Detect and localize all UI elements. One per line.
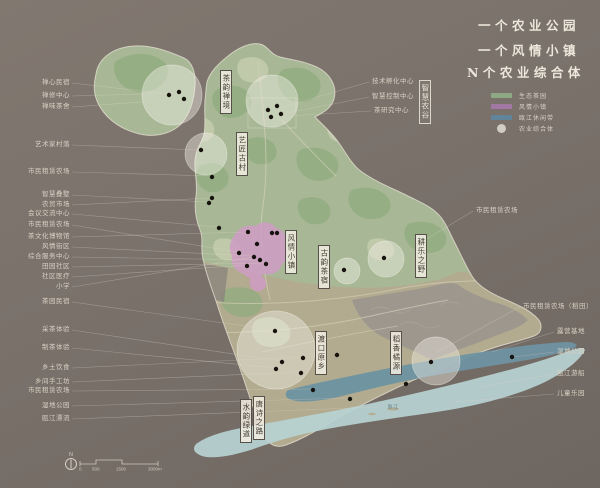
headline-agri-complex: N个农业综合体 (467, 62, 585, 81)
legend-row: 风情小镇 (491, 101, 554, 112)
poi-dot (342, 268, 346, 272)
map-district-label: 渡口原乡 (315, 331, 327, 375)
poi-dot (348, 397, 352, 401)
callout-label: 风情街区 (42, 243, 70, 251)
poi-dot (255, 242, 259, 246)
poi-dot (252, 255, 256, 259)
callout-label: 市民租赁农场（稻田） (523, 303, 593, 311)
poi-dot (266, 108, 270, 112)
callout-label: 禅味茶舍 (42, 103, 70, 111)
poi-dot (279, 112, 283, 116)
poi-dot (269, 115, 273, 119)
map-district-label: 稻香橘源 (390, 331, 402, 375)
legend-label: 风情小镇 (519, 102, 547, 111)
agri-complex-circle (334, 258, 360, 284)
headline-agri-park: 一个农业公园 (478, 15, 580, 34)
poi-dot (404, 382, 408, 386)
callout-label: 茶园民宿 (42, 298, 70, 306)
legend: 生态茶园风情小镇瓯江休闲带农业综合体 (491, 90, 554, 134)
callout-label: 市民租赁农场 (476, 207, 518, 215)
map-district-label: 唐诗之路 (253, 396, 265, 440)
agri-complex-circle (246, 75, 298, 127)
poi-dot (210, 196, 214, 200)
north-arrow (66, 459, 77, 470)
callout-label: 会议交流中心 (28, 210, 70, 218)
scale-tick-label: 1500 (116, 467, 127, 472)
callout-label: 田园社区 (42, 263, 70, 271)
poi-dot (264, 262, 268, 266)
river-label: 瓯江 (388, 404, 399, 410)
scale-labels: 050015003000m (79, 467, 162, 472)
poi-dot (246, 230, 250, 234)
callout-label: 市民租赁农场 (28, 221, 70, 229)
poi-dot (311, 388, 315, 392)
poi-dot (245, 264, 249, 268)
callout-label: 市民租赁农场 (28, 387, 70, 395)
map-district-label: 水韵绿道 (240, 399, 252, 443)
legend-row: 瓯江休闲带 (491, 112, 554, 123)
poi-dot (199, 148, 203, 152)
map-district-label: 风情小镇 (285, 230, 297, 274)
map-district-label: 茶韵禅境 (220, 70, 232, 114)
agri-complex-circle (142, 65, 202, 125)
headline-charm-town: 一个风情小镇 (478, 40, 580, 59)
callout-label: 禅心民宿 (42, 79, 70, 87)
poi-dot (275, 104, 279, 108)
poi-dot (274, 367, 278, 371)
callout-label: 采茶体验 (42, 326, 70, 334)
legend-swatch-bar (491, 115, 512, 120)
callout-label: 智慧叠墅 (42, 191, 70, 199)
callout-label: 茶文化博物馆 (28, 233, 70, 241)
callout-label: 湿地公园 (42, 402, 70, 410)
poi-dot (207, 201, 211, 205)
legend-swatch-bar (491, 93, 512, 98)
poi-dot (510, 355, 514, 359)
callout-label: 湿地公园 (557, 348, 585, 356)
callout-label: 瓯江漂流 (42, 415, 70, 423)
scale-tick-label: 0 (79, 467, 82, 472)
callout-label: 茶研究中心 (374, 107, 409, 115)
poi-dot (258, 258, 262, 262)
legend-label: 生态茶园 (519, 91, 547, 100)
poi-dot (217, 226, 221, 230)
callout-label: 农贸市场 (42, 201, 70, 209)
poi-dot (273, 329, 277, 333)
map-district-label: 艺匠古村 (236, 132, 248, 176)
callout-label: 制茶体验 (42, 344, 70, 352)
scale-bar (80, 460, 158, 466)
agri-complex-circle (185, 133, 227, 175)
poi-dot (177, 90, 181, 94)
poi-dot (237, 251, 241, 255)
callout-label: 市民租赁农场 (28, 168, 70, 176)
scale-tick-label: 3000m (148, 467, 162, 472)
poi-dot (301, 356, 305, 360)
legend-label: 农业综合体 (519, 124, 554, 133)
callout-label: 露营基地 (557, 328, 585, 336)
legend-swatch-circle (497, 124, 506, 133)
callout-label: 艺术家村落 (35, 141, 70, 149)
map-district-label: 古韵茶宿 (318, 245, 330, 289)
callout-label: 综合服务中心 (28, 253, 70, 261)
map-district-label: 耕乐之野 (415, 234, 427, 278)
legend-row: 农业综合体 (491, 123, 554, 134)
poi-dot (429, 360, 433, 364)
poi-dot (210, 175, 214, 179)
poi-dot (335, 353, 339, 357)
north-label: N (69, 452, 73, 458)
map-district-label: 智慧农谷 (419, 80, 431, 124)
callout-label: 小学 (56, 283, 70, 291)
poi-dot (182, 97, 186, 101)
agri-complex-circle (368, 241, 404, 277)
legend-row: 生态茶园 (491, 90, 554, 101)
poi-dot (275, 231, 279, 235)
callout-label: 技术孵化中心 (372, 78, 414, 86)
poi-dot (280, 360, 284, 364)
callout-label: 乡间手工坊 (35, 378, 70, 386)
agri-complex-circle (237, 311, 315, 389)
callout-label: 瓯江游船 (557, 370, 585, 378)
poi-dot (299, 371, 303, 375)
agri-complex-circle (412, 337, 460, 385)
callout-label: 社区医疗 (42, 273, 70, 281)
callout-label: 乡土饮食 (42, 364, 70, 372)
scale-tick-label: 500 (92, 467, 100, 472)
callout-label: 智慧控制中心 (372, 93, 414, 101)
legend-label: 瓯江休闲带 (519, 113, 554, 122)
poi-dot (167, 93, 171, 97)
poi-dot (382, 256, 386, 260)
legend-swatch-bar (491, 104, 512, 109)
planning-map-poster: N 050015003000m 一个农业公园 一个风情小镇 N个农业综合体 生态… (0, 0, 600, 488)
callout-label: 儿童乐园 (557, 390, 585, 398)
callout-label: 禅修中心 (42, 92, 70, 100)
poi-dot (270, 231, 274, 235)
